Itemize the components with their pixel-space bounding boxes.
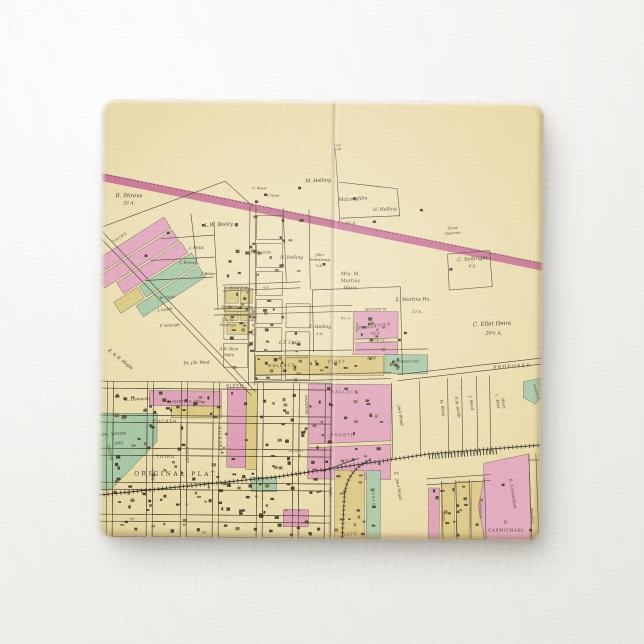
map-label: J. Bisler	[200, 271, 216, 276]
map-label: ST.	[263, 285, 269, 290]
map-svg: R. Shreve33 A.CoalBankM. HellingMcLaughl…	[99, 99, 544, 541]
map-label: FIFTH	[226, 383, 244, 388]
map-label: E. Helling	[308, 325, 332, 330]
map-label: R. Shreve	[114, 193, 143, 199]
map-label: 33 A.	[123, 200, 135, 206]
map-label: ST.	[130, 517, 135, 521]
map-label: J. Brown	[179, 260, 198, 265]
map-label: FOURTH	[153, 419, 178, 424]
map-label: HANOVER	[304, 395, 309, 415]
map-label: ORIGINAL PLAT	[134, 470, 217, 478]
map-label: J. Betts	[188, 245, 204, 250]
map-label: J. Edwards	[249, 249, 271, 254]
map-label: H. Helling	[279, 256, 303, 261]
map-label: LOCUST	[185, 446, 190, 463]
pinback-button: R. Shreve33 A.CoalBankM. HellingMcLaughl…	[99, 99, 544, 541]
map-label: Morrison	[219, 323, 237, 327]
map-label: ADD	[114, 441, 124, 445]
map-label: EIGTH	[230, 285, 249, 290]
map-label: HICKORY	[218, 426, 224, 452]
map-label: L.T. Craig	[278, 341, 301, 346]
map-label: A.B. Rice	[218, 346, 238, 351]
map-label: G. Wood	[252, 186, 267, 190]
map-label: 5 A.	[316, 264, 323, 268]
map-label: Heirs	[222, 352, 234, 357]
map-fold-crease	[328, 101, 544, 541]
map-label: M. Helling	[304, 177, 331, 184]
map-label: ST.	[202, 531, 207, 535]
map-label: SEVENTH ST.	[221, 305, 244, 309]
map-label: SUMMIT	[288, 449, 304, 453]
map-label: E. MARTIN'S ADD	[167, 400, 201, 404]
map-label: WALNUT	[251, 309, 256, 337]
map-label: J. Wood	[266, 194, 279, 198]
map-label: THIRD	[156, 454, 175, 459]
studio-background: R. Shreve33 A.CoalBankM. HellingMcLaughl…	[0, 0, 644, 644]
map-label: 5 A.	[316, 332, 323, 336]
map-label: J. & W.	[221, 318, 234, 322]
map-label: Armstrong	[308, 257, 330, 262]
